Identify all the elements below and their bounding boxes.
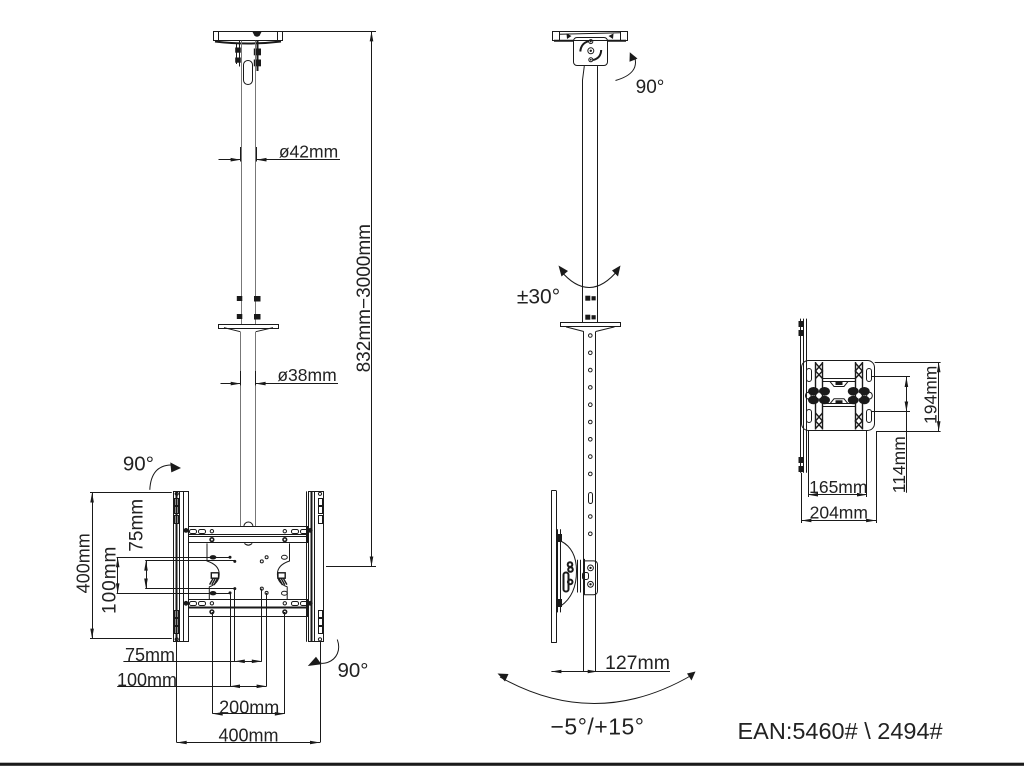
svg-text:−5°/+15°: −5°/+15° [550, 714, 644, 740]
svg-text:ø38mm: ø38mm [277, 365, 336, 385]
svg-text:90°: 90° [337, 659, 368, 682]
svg-text:194mm: 194mm [921, 366, 941, 424]
svg-text:90°: 90° [636, 77, 665, 98]
svg-text:±30°: ±30° [517, 286, 560, 309]
svg-text:165mm: 165mm [809, 477, 867, 497]
svg-text:90°: 90° [123, 453, 154, 476]
svg-text:75mm: 75mm [125, 645, 175, 665]
svg-text:200mm: 200mm [219, 697, 279, 717]
svg-text:204mm: 204mm [810, 502, 868, 522]
svg-text:ø42mm: ø42mm [279, 142, 338, 162]
svg-text:100mm: 100mm [100, 546, 121, 614]
svg-text:100mm: 100mm [117, 670, 177, 690]
svg-text:EAN:5460# \ 2494#: EAN:5460# \ 2494# [738, 718, 943, 744]
svg-text:75mm: 75mm [127, 499, 148, 552]
svg-text:127mm: 127mm [605, 652, 670, 674]
svg-text:114mm: 114mm [889, 436, 909, 493]
svg-text:400mm: 400mm [74, 533, 94, 593]
svg-text:400mm: 400mm [218, 725, 278, 745]
svg-text:832mm−3000mm: 832mm−3000mm [354, 224, 375, 372]
